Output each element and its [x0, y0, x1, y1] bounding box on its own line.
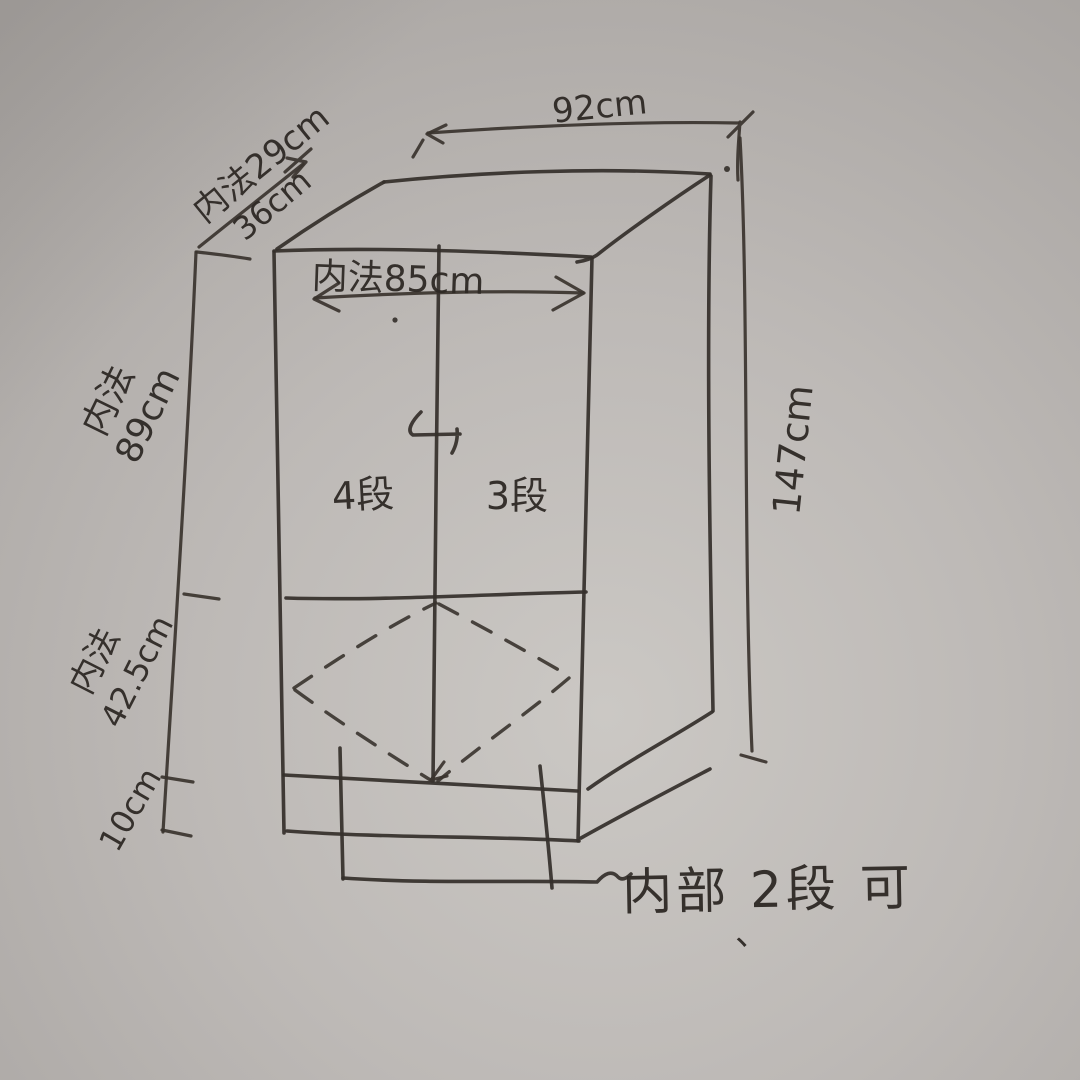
sketch-canvas: 92cm 内法29cm 36cm 内法85cm 内法 89cm 内法 42.5c…: [0, 0, 1080, 1080]
ink-dot-top-right: [724, 166, 730, 172]
label-right-bay: 3段: [486, 474, 548, 518]
ink-dot-under-arrow: [392, 317, 397, 322]
label-note-mark: 、: [735, 914, 769, 954]
label-note: 内部 2段 可: [622, 858, 915, 921]
paper-corner-shadow: [0, 0, 1080, 1080]
paper-photo: 92cm 内法29cm 36cm 内法85cm 内法 89cm 内法 42.5c…: [0, 0, 1080, 1080]
label-inner-width: 内法85cm: [311, 256, 485, 303]
label-left-bay: 4段: [331, 471, 395, 518]
